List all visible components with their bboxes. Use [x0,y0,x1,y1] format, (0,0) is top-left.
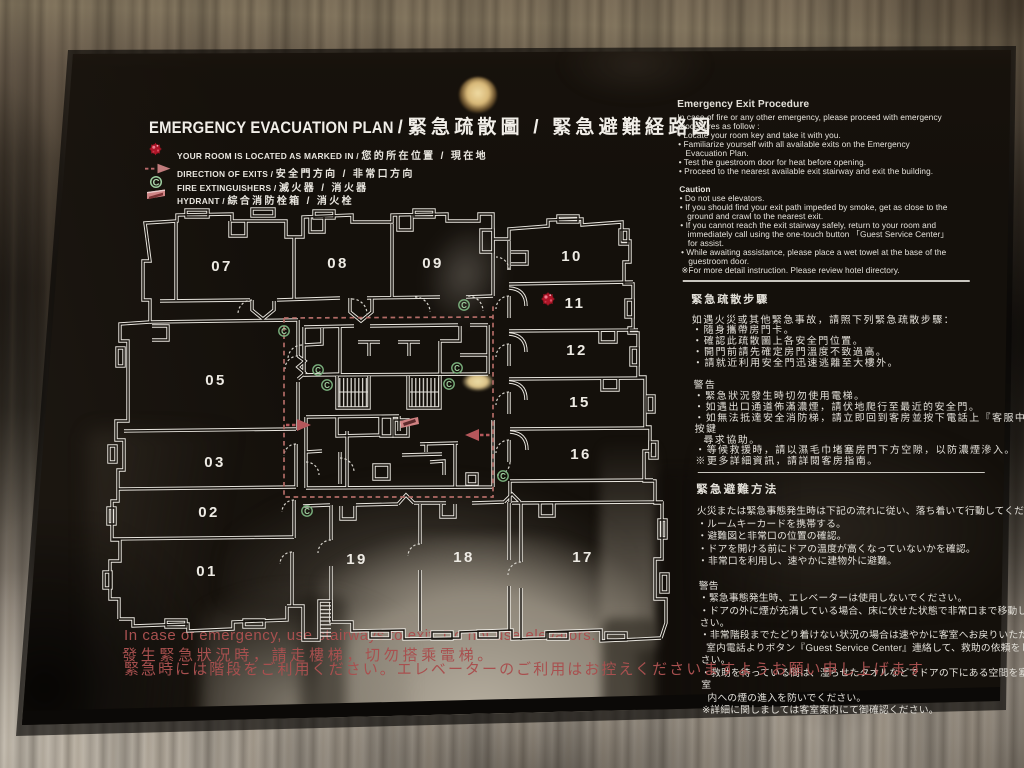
svg-text:10: 10 [561,248,583,265]
svg-text:C: C [315,366,321,375]
svg-text:18: 18 [453,549,475,566]
svg-text:07: 07 [211,258,233,275]
svg-text:11: 11 [565,295,586,312]
svg-text:03: 03 [204,454,226,471]
svg-text:12: 12 [566,342,588,359]
svg-text:C: C [153,177,160,188]
svg-text:09: 09 [422,255,444,272]
svg-text:C: C [461,301,467,310]
svg-text:C: C [304,507,310,516]
svg-text:15: 15 [569,394,591,411]
svg-text:C: C [454,364,460,373]
svg-text:17: 17 [572,549,594,566]
svg-text:05: 05 [205,372,227,389]
svg-text:01: 01 [196,563,218,580]
svg-text:C: C [324,381,330,390]
svg-text:C: C [500,472,506,481]
svg-text:08: 08 [327,255,349,272]
svg-text:C: C [446,380,452,389]
svg-text:19: 19 [346,551,368,568]
svg-text:C: C [281,327,287,336]
svg-text:16: 16 [570,446,592,463]
svg-text:02: 02 [198,504,220,521]
